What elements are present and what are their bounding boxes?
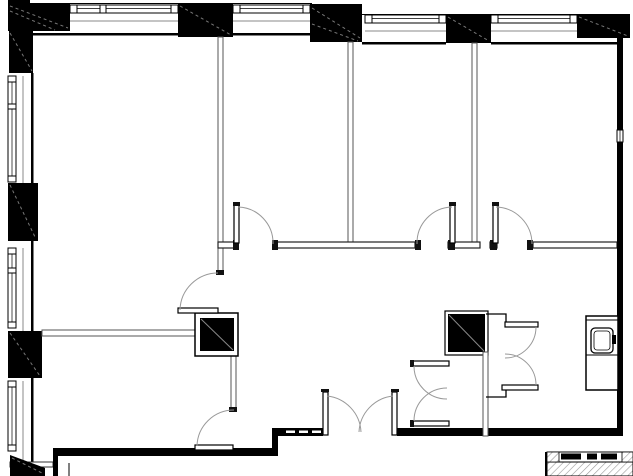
bottom-left-stub-1 [53, 456, 58, 476]
column-top-4 [446, 15, 491, 43]
window-left-3-cap-b [8, 445, 16, 451]
window-top-4-cap-r [570, 15, 577, 23]
column-left-mid [8, 183, 38, 241]
neighbor-band-hatch-l [547, 452, 559, 462]
entry-double-door-leaf-r [392, 392, 397, 435]
door-room-a-leaf [178, 308, 218, 313]
door-room-b-leaf [234, 205, 239, 243]
door-room-a-arc [180, 273, 218, 310]
door-room-b-arc [238, 207, 273, 244]
door-room-d-arc [496, 207, 532, 244]
window-top-4 [491, 15, 577, 23]
door-lowerleft-arc [197, 410, 234, 446]
corridor-wall-seg-2 [277, 242, 415, 248]
closet-east-jamb-bottom [486, 390, 506, 397]
left-wall-inner-face-2 [31, 241, 34, 331]
partition-lowerleft-east [231, 356, 236, 408]
closet-east-leaf-bottom [502, 385, 538, 390]
top-wall-inner-face-4 [491, 42, 617, 45]
top-wall-inner-face-3 [362, 42, 446, 45]
column-top-corner-bar [8, 0, 30, 4]
partition-room-bc [348, 42, 353, 242]
neighbor-band-dash-2 [587, 454, 597, 460]
neighbor-band-dash-1 [561, 454, 581, 460]
window-top-2-cap-r [303, 5, 310, 13]
right-exterior-wall-upper [617, 38, 623, 130]
window-top-1 [70, 5, 178, 13]
floorplan-canvas [0, 0, 633, 476]
left-wall-inner-face-1 [31, 73, 34, 183]
entry-double-door-arc-l [327, 396, 361, 432]
window-top-1-cap-r [171, 5, 178, 13]
window-left-1-cap-b [8, 176, 16, 182]
closet-east-arc-bottom [505, 354, 536, 385]
bottom-wall-left [53, 448, 272, 456]
partition-left-horizontal [42, 330, 195, 336]
window-left-1-mullion [8, 104, 16, 109]
window-left-2-cap-b [8, 322, 16, 328]
entry-double-door-leaf-l [323, 392, 328, 435]
closet-east-leaf-top [505, 322, 538, 327]
sink-faucet [612, 335, 616, 344]
window-left-2-cap-t [8, 248, 16, 254]
neighbor-structure-edge [545, 452, 547, 476]
top-wall-inner-face-1 [33, 33, 178, 36]
window-left-2-mullion [8, 268, 16, 273]
right-exterior-wall-lower [617, 142, 623, 436]
partition-lowerleft-end-post [229, 407, 237, 412]
window-top-1-cap-l [70, 5, 77, 13]
partition-room-cd [472, 43, 477, 242]
sink-inner [594, 331, 610, 350]
door-room-b-cap [233, 202, 240, 206]
closet-west-leaf-bottom [413, 421, 449, 426]
window-top-3-cap-r [439, 15, 446, 23]
closet-west-post-bottom [410, 420, 414, 427]
floorplan-drawing [0, 0, 633, 476]
closet-west-arc-bottom [414, 388, 447, 421]
door-room-c-leaf [450, 205, 455, 243]
door-post-2a [415, 240, 421, 250]
window-top-2 [233, 5, 310, 13]
window-top-2-cap-l [233, 5, 240, 13]
threshold-dash-1 [286, 431, 295, 434]
column-top-2 [178, 4, 233, 37]
entry-double-door-cap-l [321, 389, 329, 392]
closet-west-post-top [410, 360, 414, 367]
window-top-1-mullion [100, 5, 106, 13]
entry-double-door-arc-r [359, 396, 393, 432]
door-room-d-cap [492, 202, 499, 206]
door-lowerleft-leaf [195, 445, 233, 450]
bottom-wall-right [397, 428, 623, 436]
partition-room-a-east-upper [218, 37, 223, 242]
partition-room-a-east-lower [218, 248, 223, 272]
threshold-dash-3 [312, 431, 321, 434]
closet-east-jamb-top [486, 314, 506, 322]
door-room-c-arc [417, 207, 452, 244]
neighbor-band-dash-3 [601, 454, 617, 460]
closet-east-arc-top [505, 327, 536, 358]
window-top-3 [365, 15, 446, 23]
core-back-wall [483, 352, 488, 436]
window-left-1-cap-t [8, 76, 16, 82]
entry-double-door-cap-r [391, 389, 399, 392]
door-room-d-leaf [493, 205, 498, 243]
window-top-4-cap-l [491, 15, 498, 23]
threshold-dash-2 [299, 431, 308, 434]
partition-room-a-end-post [216, 270, 224, 275]
closet-west-leaf-top [413, 361, 449, 366]
neighbor-band-hatch-r [622, 452, 633, 462]
left-wall-inner-face-3 [31, 378, 34, 462]
window-left-3-cap-t [8, 381, 16, 387]
column-top-3 [310, 4, 362, 42]
closet-west-arc-top [414, 366, 447, 399]
top-wall-inner-face-2 [233, 33, 312, 36]
corridor-wall-seg-5 [533, 242, 617, 248]
door-room-c-cap [449, 202, 456, 206]
window-top-3-cap-l [365, 15, 372, 23]
